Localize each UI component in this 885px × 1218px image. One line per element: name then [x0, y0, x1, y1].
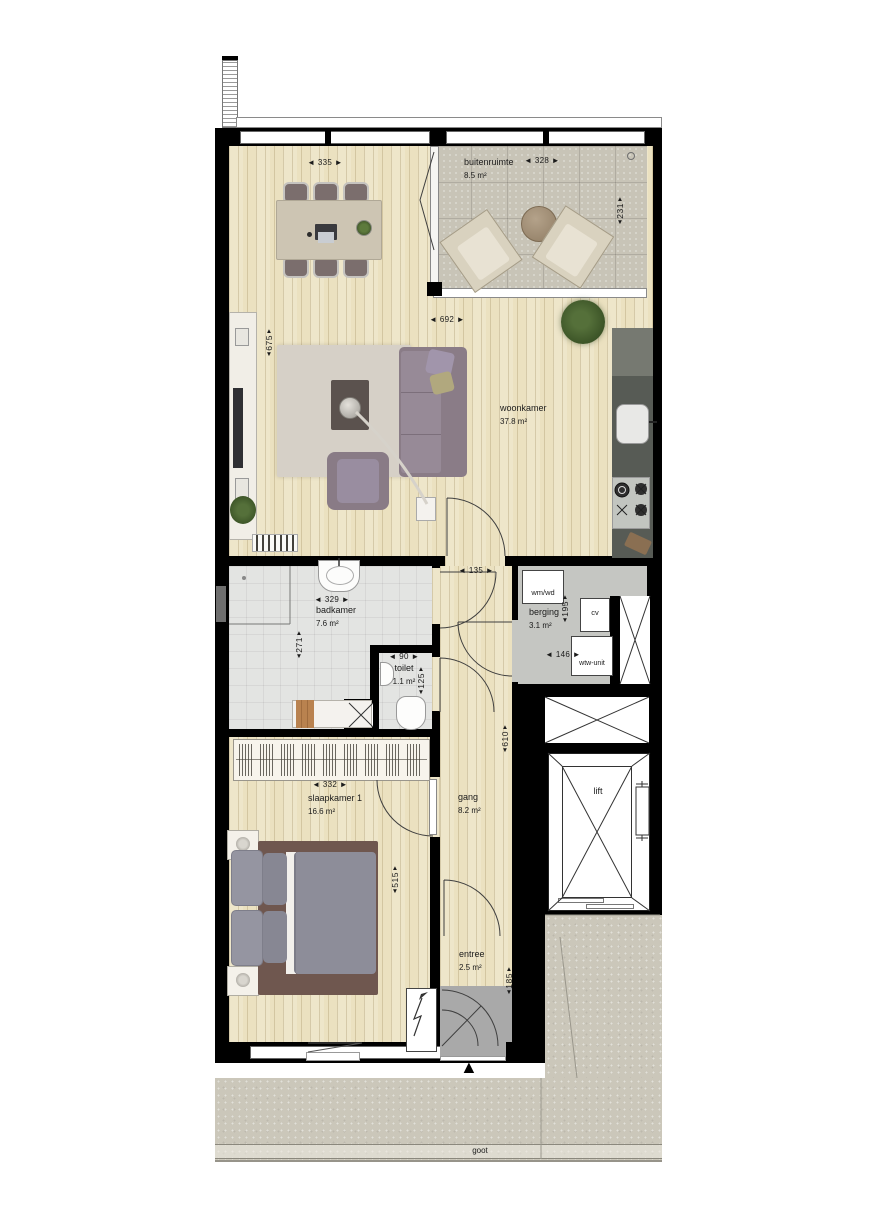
room-name: entree — [459, 948, 485, 961]
room-label-badkamer: badkamer 7.6 m² — [316, 604, 356, 630]
room-area: 7.6 m² — [316, 617, 356, 630]
room-name: buitenruimte — [464, 156, 514, 169]
door-arcs — [377, 152, 512, 1046]
burner-icon — [615, 483, 629, 497]
floor-plan: ▲ — [0, 0, 885, 1218]
front-door-swing — [442, 990, 498, 1046]
dim-arrow-up-icon: ▲ — [617, 196, 623, 203]
dim-arrow-down-icon: ▼ — [502, 747, 508, 754]
shaft-cross-icon — [349, 703, 373, 727]
room-label-woonkamer: woonkamer 37.8 m² — [500, 402, 547, 428]
room-name: berging — [529, 606, 559, 619]
dim-arrow-down-icon: ▼ — [392, 888, 398, 895]
room-label-buitenruimte: buitenruimte 8.5 m² — [464, 156, 514, 182]
dim-arrow-down-icon: ▼ — [296, 653, 302, 660]
dim-arrow-up-icon: ▲ — [296, 630, 302, 637]
room-area: 2.5 m² — [459, 961, 485, 974]
room-name: gang — [458, 791, 481, 804]
room-name: lift — [573, 785, 623, 798]
shower-partition — [229, 566, 290, 624]
dim-hall-depth: ▲ 610 ▼ — [498, 724, 512, 754]
arc-floor-lamp — [356, 412, 427, 504]
gallery-lines — [541, 915, 660, 1159]
lift-counterweight — [636, 787, 649, 835]
dim-arrow-down-icon: ▼ — [418, 689, 424, 696]
dim-living-width: ◄ 692 ► — [417, 315, 477, 324]
room-area: 3.1 m² — [529, 619, 559, 632]
dim-living-depth: ▲ 675 ▼ — [262, 328, 276, 358]
badkamer-door-swing — [440, 572, 496, 628]
burner-cross-icon — [617, 505, 627, 515]
dim-arrow-up-icon: ▲ — [266, 328, 272, 335]
dim-arrow-up-icon: ▲ — [392, 865, 398, 872]
dim-arrow-down-icon: ▼ — [617, 219, 623, 226]
room-area: 37.8 m² — [500, 415, 547, 428]
shaft-cross-icon — [545, 697, 649, 743]
dim-arrow-up-icon: ▲ — [562, 594, 568, 601]
room-label-entree: entree 2.5 m² — [459, 948, 485, 974]
room-label-slaapkamer: slaapkamer 1 16.6 m² — [308, 792, 362, 818]
room-area: 8.5 m² — [464, 169, 514, 182]
dim-hall-passage: ◄ 135 ► — [444, 566, 508, 575]
dim-arrow-up-icon: ▲ — [506, 966, 512, 973]
gang-entree-door-swing — [444, 880, 500, 936]
room-area: 8.2 m² — [458, 804, 481, 817]
dim-bath-width: ◄ 329 ► — [302, 595, 362, 604]
slaapkamer-door-swing — [377, 780, 433, 836]
toilet-door-swing — [440, 658, 494, 712]
room-name: badkamer — [316, 604, 356, 617]
dim-storage-depth: ▲ 195 ▼ — [558, 594, 572, 624]
dim-toilet-depth: ▲ 125 ▼ — [414, 666, 428, 696]
zigzag-arrowhead — [419, 992, 428, 1000]
dim-balcony-width: ◄ 328 ► — [512, 156, 572, 165]
dim-arrow-up-icon: ▲ — [418, 666, 424, 673]
electric-zigzag-icon — [414, 998, 422, 1036]
room-label-lift: lift — [573, 785, 623, 798]
dim-bedroom-depth: ▲ 515 ▼ — [388, 865, 402, 895]
room-label-gang: gang 8.2 m² — [458, 791, 481, 817]
stove-burners — [615, 483, 647, 516]
dim-bedroom-width: ◄ 332 ► — [300, 780, 360, 789]
woonkamer-door-swing — [447, 498, 505, 556]
berging-door-swing — [458, 622, 512, 676]
gutter-label: goot — [460, 1146, 500, 1155]
dim-balcony-depth: ▲ 231 ▼ — [613, 196, 627, 226]
gallery-ramp-line — [560, 937, 577, 1078]
window-opening-flag — [308, 1043, 362, 1052]
dim-arrow-down-icon: ▼ — [506, 989, 512, 996]
dim-arrow-up-icon: ▲ — [502, 724, 508, 731]
room-name: slaapkamer 1 — [308, 792, 362, 805]
dim-entree-depth: ▲ 185 ▼ — [502, 966, 516, 996]
dim-toilet-width: ◄ 90 ► — [377, 652, 431, 661]
shower-drain-icon — [242, 576, 246, 580]
dim-arrow-down-icon: ▼ — [266, 351, 272, 358]
room-area: 16.6 m² — [308, 805, 362, 818]
balcony-door-open — [420, 152, 434, 250]
dim-arrow-down-icon: ▼ — [562, 617, 568, 624]
shower-glass-line — [229, 566, 290, 624]
room-name: woonkamer — [500, 402, 547, 415]
shaft-cross-icon — [620, 596, 650, 684]
boiler-label: cv — [580, 608, 610, 617]
room-label-berging: berging 3.1 m² — [529, 606, 559, 632]
plan-linework — [0, 0, 885, 1218]
dim-dining-width: ◄ 335 ► — [295, 158, 355, 167]
dim-bath-depth: ▲ 271 ▼ — [292, 630, 306, 660]
wtw-label: wtw-unit — [571, 660, 613, 667]
lift-corner-lines — [548, 753, 650, 911]
dim-storage-width: ◄ 146 ► — [536, 650, 590, 659]
